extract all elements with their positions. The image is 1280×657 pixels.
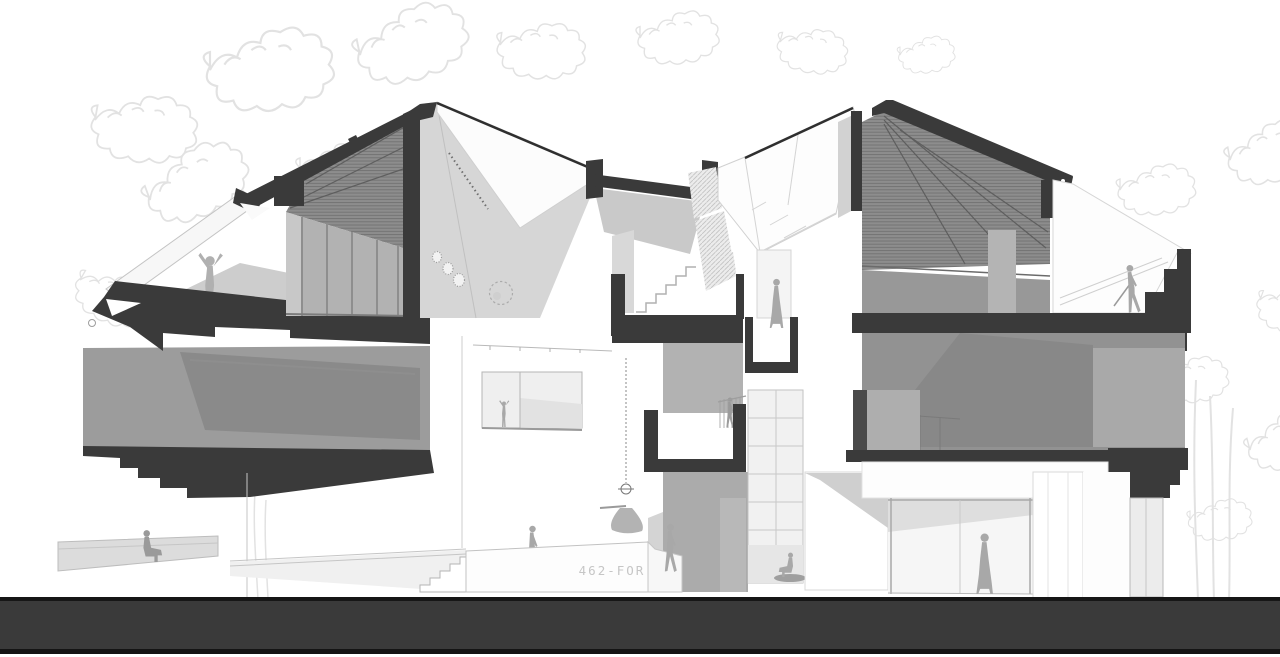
tree-trunk bbox=[1194, 380, 1233, 600]
ground-strip bbox=[0, 597, 1280, 654]
window-jamb-dark bbox=[853, 390, 867, 450]
left-roof bbox=[233, 102, 597, 318]
lower-floor-slab-cut bbox=[83, 446, 434, 498]
second-floor-slab-cut bbox=[846, 450, 1113, 462]
street-bench-wall bbox=[58, 536, 218, 571]
gable-wall-right-cut bbox=[1041, 180, 1053, 218]
stair-steps bbox=[636, 267, 696, 312]
ground-top-line bbox=[0, 597, 1280, 601]
right-wing bbox=[846, 100, 1191, 598]
interior-corner-column bbox=[286, 212, 302, 316]
storefront-pier bbox=[1033, 472, 1083, 598]
gable-wall-cut bbox=[403, 106, 420, 318]
plinth-entry: 462-FOR bbox=[58, 512, 682, 592]
chair-shadow bbox=[774, 574, 806, 582]
core-door bbox=[720, 498, 746, 592]
section-drawing: 462-FOR bbox=[0, 0, 1280, 657]
window-glass bbox=[867, 390, 920, 450]
tree-trunk bbox=[254, 478, 268, 600]
ground-bottom-line bbox=[0, 649, 1280, 654]
core-wall-mid bbox=[663, 343, 743, 413]
ground-band bbox=[0, 601, 1280, 649]
side-wall-white bbox=[1083, 472, 1130, 598]
gutter-end bbox=[89, 320, 96, 327]
hatched-panel-upper bbox=[688, 167, 722, 219]
gable-wall-left-cut bbox=[851, 111, 862, 211]
address-sign-text: 462-FOR bbox=[579, 563, 646, 578]
lamp-shade-shadow bbox=[611, 508, 643, 533]
ornament-center bbox=[493, 292, 501, 300]
eave-beam-block-cut bbox=[274, 176, 304, 206]
shade-band bbox=[838, 115, 853, 218]
section-drawing-canvas: 462-FOR bbox=[0, 0, 1280, 657]
hatched-panel-lower bbox=[695, 211, 736, 291]
middle-room-right-panel bbox=[1093, 348, 1185, 447]
lamp-arm bbox=[600, 506, 626, 508]
faceted-white-plane bbox=[718, 107, 856, 253]
